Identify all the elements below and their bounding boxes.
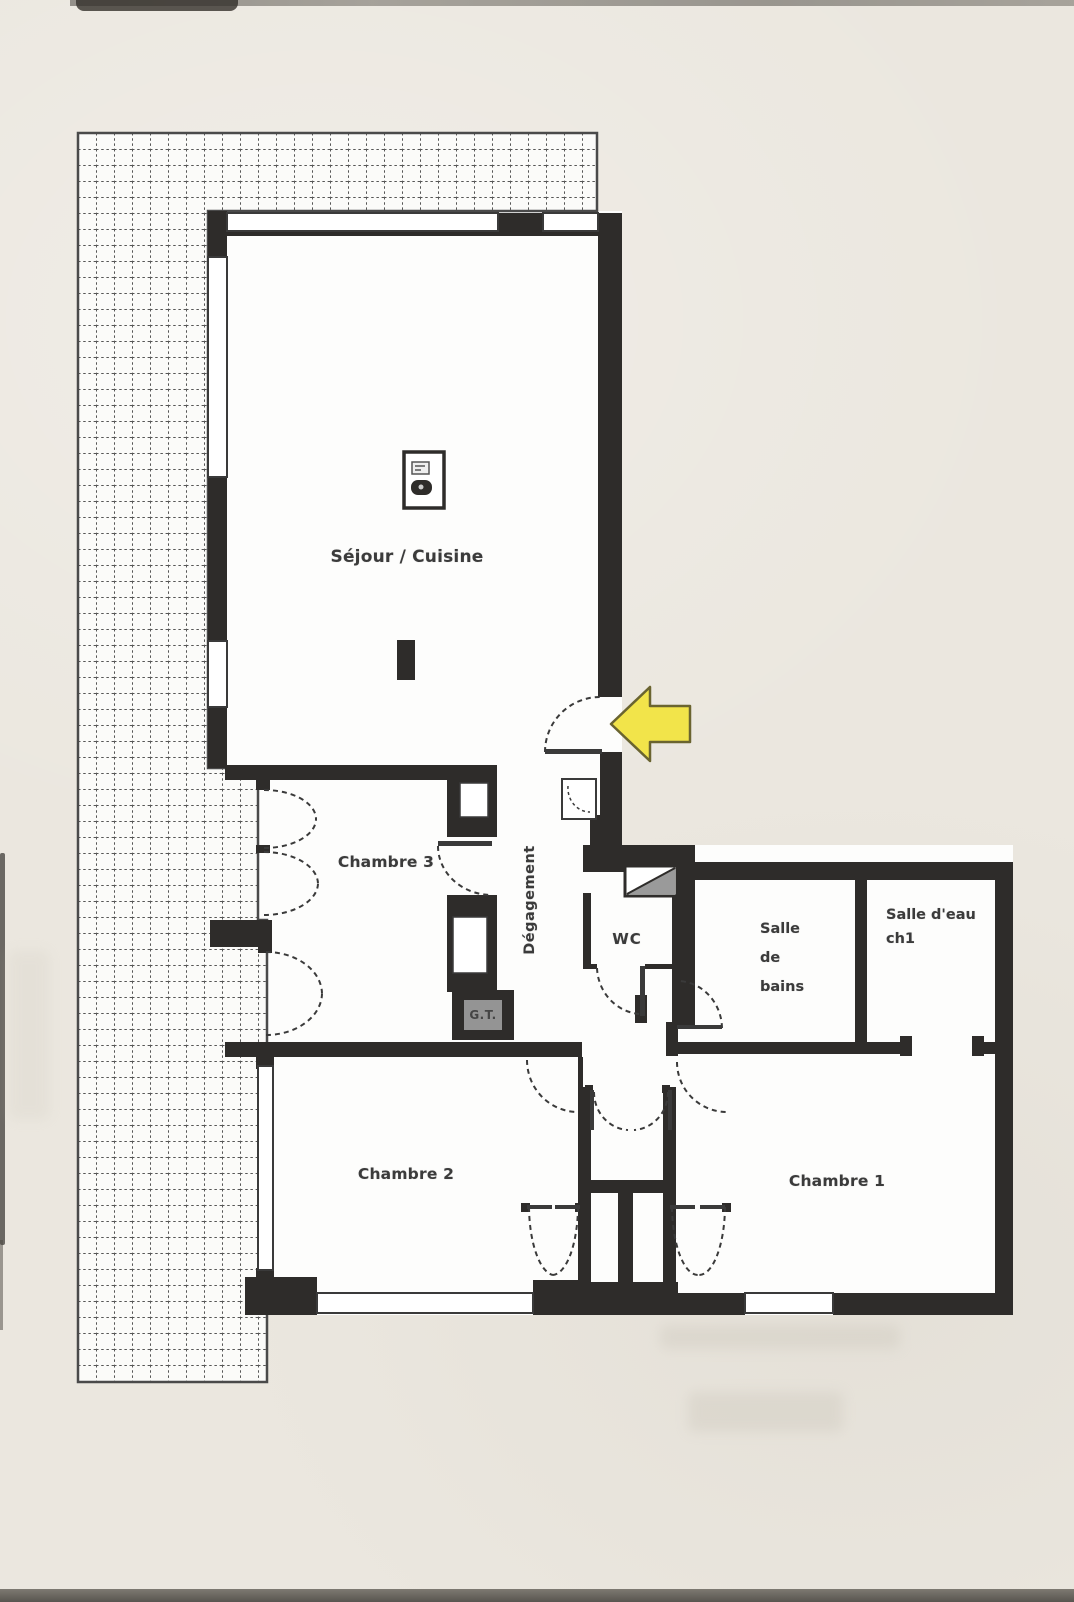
floorplan-drawing [0,0,1074,1602]
room-label-chambre1: Chambre 1 [789,1172,885,1190]
room-label-degagement: Dégagement [522,845,538,954]
room-label-salle-de-bains: Salle de bains [760,915,804,1002]
room-label-sejour-cuisine: Séjour / Cuisine [331,547,484,567]
gt-box-label: G.T. [469,1008,496,1022]
ventilation-shaft [625,866,677,896]
room-label-wc: WC [612,930,642,948]
entry-duct-box [562,779,596,819]
entrance-arrow-icon [611,687,690,761]
room-label-salle-eau-ch1: Salle d'eau ch1 [886,903,976,951]
niche-box [453,917,487,973]
room-label-chambre3: Chambre 3 [338,853,434,871]
niche-box [460,783,488,817]
electrical-panel-icon [404,452,444,508]
room-label-chambre2: Chambre 2 [358,1165,454,1183]
entrance-door-leaf [545,749,602,754]
